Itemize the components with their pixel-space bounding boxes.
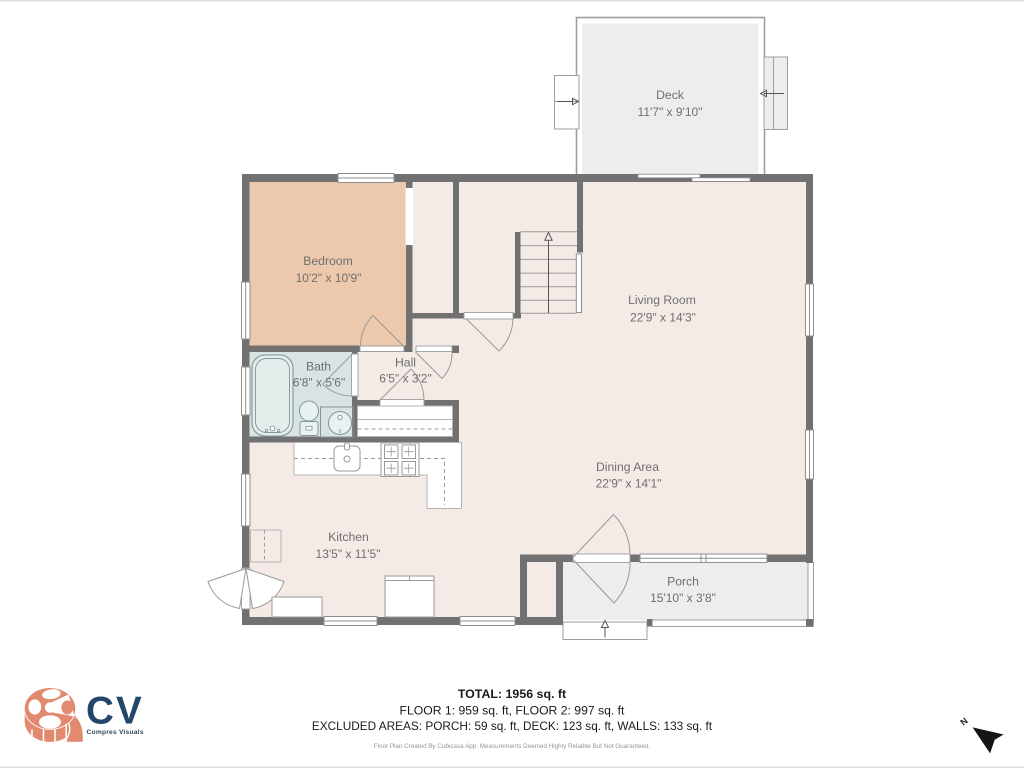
svg-text:Deck: Deck — [656, 88, 685, 102]
svg-text:22'9" x 14'1": 22'9" x 14'1" — [596, 477, 662, 491]
svg-text:EXCLUDED AREAS: PORCH: 59 sq.: EXCLUDED AREAS: PORCH: 59 sq. ft, DECK: … — [312, 719, 713, 733]
svg-text:22'9" x 14'3": 22'9" x 14'3" — [630, 311, 696, 325]
svg-text:Kitchen: Kitchen — [328, 530, 369, 544]
svg-text:11'7" x 9'10": 11'7" x 9'10" — [638, 105, 703, 119]
svg-text:6'5" x 3'2": 6'5" x 3'2" — [379, 372, 431, 386]
svg-text:CV: CV — [86, 690, 144, 733]
svg-text:Compres Visuals: Compres Visuals — [87, 729, 144, 736]
svg-text:6'8" x 5'6": 6'8" x 5'6" — [293, 376, 345, 390]
svg-text:Bedroom: Bedroom — [303, 254, 352, 268]
svg-text:N: N — [958, 716, 969, 728]
svg-text:Bath: Bath — [306, 360, 331, 374]
svg-text:Porch: Porch — [667, 575, 699, 589]
svg-text:15'10" x 3'8": 15'10" x 3'8" — [650, 591, 716, 605]
svg-text:Living Room: Living Room — [628, 293, 696, 307]
svg-text:13'5" x 11'5": 13'5" x 11'5" — [316, 547, 381, 561]
svg-text:Dining Area: Dining Area — [596, 460, 659, 474]
svg-text:Hall: Hall — [395, 356, 416, 370]
svg-text:10'2" x 10'9": 10'2" x 10'9" — [296, 271, 362, 285]
svg-text:FLOOR 1: 959 sq. ft, FLOOR 2:: FLOOR 1: 959 sq. ft, FLOOR 2: 997 sq. ft — [400, 704, 625, 718]
svg-text:Floor Plan Created By Cubicasa: Floor Plan Created By Cubicasa App. Meas… — [374, 743, 651, 750]
svg-text:TOTAL: 1956 sq. ft: TOTAL: 1956 sq. ft — [458, 687, 566, 701]
